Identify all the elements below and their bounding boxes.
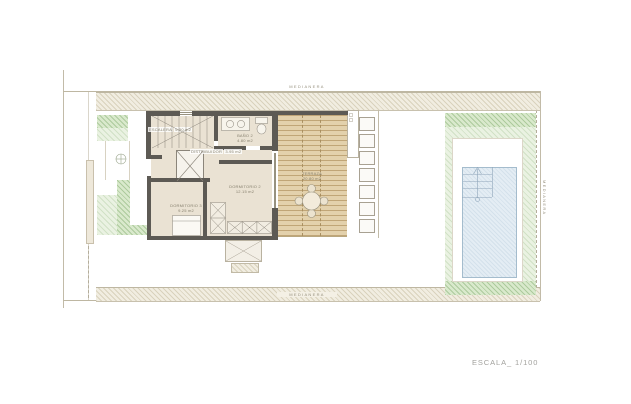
room-area: 9.25 m2: [167, 208, 205, 213]
boundary-wall-left: [86, 160, 94, 244]
wall-right-upper: [272, 111, 278, 151]
room-label-dormitorio-3: DORMITORIO 3 9.25 m2: [167, 203, 205, 213]
garden-block-left: [97, 195, 117, 235]
room-area: 12.15 m2: [226, 189, 264, 194]
wall-bath-left: [214, 111, 218, 141]
plot-right-dashed-line: [536, 110, 537, 288]
medianera-label-top: MEDIANERA: [277, 84, 337, 89]
slat-1: [359, 117, 375, 131]
medianera-label-bottom: MEDIANERA: [277, 292, 337, 297]
room-label-bano-2: BAÑO 2 4.80 m2: [228, 133, 262, 143]
medianera-band-top: [96, 92, 540, 111]
slat-6: [359, 202, 375, 216]
wall-left-upper: [146, 111, 151, 159]
swimming-pool: [462, 167, 517, 278]
room-label-distribuidor: DISTRIBUIDOR 3.95 m2: [190, 149, 230, 154]
window-top: [180, 112, 192, 115]
room-name: ESCALERA: [148, 127, 173, 132]
pool-garden-band-bottom: [445, 281, 536, 295]
slat-3: [359, 151, 375, 165]
wall-right-lower: [272, 208, 278, 240]
wall-left-stub: [146, 155, 162, 159]
boundary-dashed-left: [88, 246, 89, 298]
floor-plan-canvas: MEDIANERA MEDIANERA MEDIANERA: [0, 0, 631, 404]
plot-right-line: [540, 91, 541, 301]
room-area: 3.95 m2: [224, 149, 242, 154]
garden-bed-top: [97, 115, 128, 128]
wall-terrace-top: [278, 111, 348, 115]
scale-label: ESCALA_ 1/100: [472, 358, 538, 367]
slat-2: [359, 134, 375, 148]
porch-canopy: [225, 240, 262, 262]
slat-4: [359, 168, 375, 182]
room-area: 20.80 m2: [295, 176, 329, 181]
pool-garden-band-top: [445, 113, 536, 127]
room-area: 4.80 m2: [228, 138, 262, 143]
wall-bottom: [147, 236, 278, 240]
wall-dorm3-top: [147, 178, 210, 182]
slat-7: [359, 219, 375, 233]
wall-dorm2-top: [219, 160, 272, 164]
pergola-edge-line: [378, 110, 379, 238]
wall-top-left: [146, 111, 180, 116]
porch-step: [231, 263, 259, 273]
pergola-panel: [347, 110, 359, 158]
room-label-terraza: TERRAZA 20.80 m2: [295, 171, 329, 181]
wall-left-lower: [147, 176, 151, 240]
glass-door-terrace: [274, 153, 276, 208]
room-name: DISTRIBUIDOR: [190, 149, 223, 154]
garden-bed-top-light: [97, 128, 128, 141]
room-label-escalera: ESCALERA 5.50 m2: [148, 127, 178, 132]
entry-path: [105, 141, 130, 180]
room-label-dormitorio-2: DORMITORIO 2 12.15 m2: [226, 184, 264, 194]
room-area: 5.50 m2: [174, 127, 192, 132]
wall-bath-bottom-b: [260, 146, 276, 150]
slat-5: [359, 185, 375, 199]
wall-top-middle: [192, 111, 278, 116]
plot-left-outer-line: [63, 70, 64, 308]
medianera-label-right: MEDIANERA: [542, 168, 547, 228]
